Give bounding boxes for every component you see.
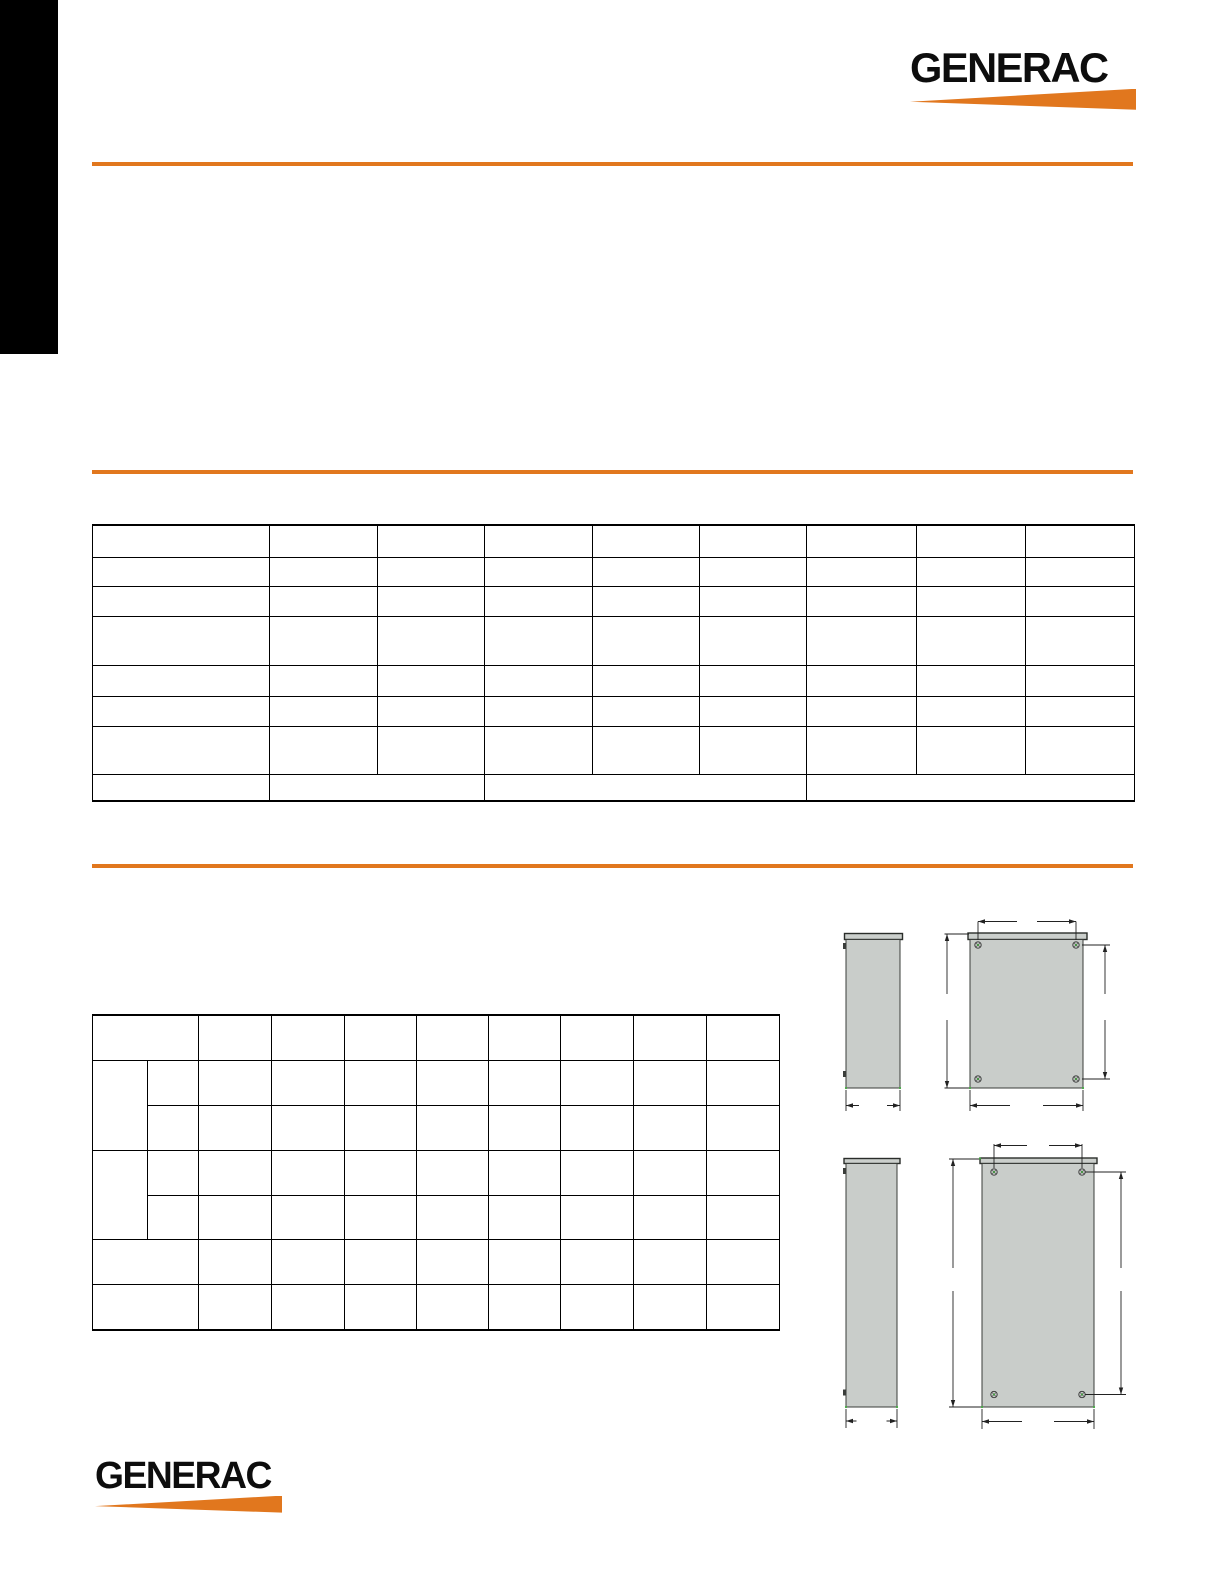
table-cell (917, 696, 1026, 726)
table-cell (634, 1015, 707, 1060)
table-cell (1026, 557, 1135, 586)
screw-icon (1079, 1391, 1085, 1397)
screw-icon (975, 1076, 981, 1082)
table-cell (270, 726, 378, 774)
table-cell (485, 525, 593, 557)
table-cell (593, 616, 700, 665)
table-cell (489, 1015, 561, 1060)
left-accent-bar (0, 0, 58, 354)
table-cell (199, 1015, 272, 1060)
table-cell (272, 1284, 345, 1330)
table-cell (485, 696, 593, 726)
table-cell (93, 774, 270, 801)
screw-icon (975, 942, 981, 948)
table-cell (707, 1105, 780, 1150)
table-cell (707, 1195, 780, 1239)
table-cell (272, 1105, 345, 1150)
table-cell (345, 1150, 417, 1195)
table-cell (345, 1195, 417, 1239)
table-cell (417, 1105, 489, 1150)
table-cell (593, 557, 700, 586)
table-cell (634, 1239, 707, 1284)
table-cell (378, 665, 485, 696)
table-cell (561, 1150, 634, 1195)
side-view-box (843, 934, 903, 1089)
table-cell (1026, 525, 1135, 557)
table-cell (807, 665, 917, 696)
side-view-box (843, 1159, 900, 1408)
table-cell (593, 586, 700, 616)
table-cell (93, 696, 270, 726)
table-cell (272, 1060, 345, 1105)
table-cell (345, 1284, 417, 1330)
table-cell (93, 557, 270, 586)
table-cell (378, 525, 485, 557)
table-cell (561, 1284, 634, 1330)
page: GENERAC (0, 0, 1224, 1584)
dimensions-table (92, 1014, 780, 1331)
table-cell (417, 1239, 489, 1284)
table-cell (485, 557, 593, 586)
table-cell (345, 1239, 417, 1284)
table-cell (270, 696, 378, 726)
screw-icon (1073, 942, 1079, 948)
table-cell (345, 1015, 417, 1060)
table-cell (489, 1239, 561, 1284)
logo-wordmark: GENERAC (910, 52, 1136, 85)
generac-logo-header: GENERAC (910, 52, 1138, 110)
enclosure-drawing-top (830, 910, 1140, 1135)
enclosure-drawing-bottom (830, 1140, 1140, 1432)
front-view-box (980, 1158, 1097, 1407)
table-cell (272, 1150, 345, 1195)
table-cell (93, 1015, 199, 1060)
generac-logo-footer: GENERAC (95, 1462, 285, 1513)
table-cell (199, 1060, 272, 1105)
table-cell (1026, 586, 1135, 616)
table-cell (700, 616, 807, 665)
table-cell (700, 665, 807, 696)
table-cell (417, 1195, 489, 1239)
table-cell (417, 1015, 489, 1060)
table-cell (561, 1239, 634, 1284)
table-cell (593, 525, 700, 557)
section-rule-1 (92, 162, 1133, 166)
table-cell (707, 1015, 780, 1060)
table-cell (707, 1060, 780, 1105)
screw-icon (1073, 1076, 1079, 1082)
table-cell (634, 1060, 707, 1105)
table-cell (634, 1105, 707, 1150)
table-cell (199, 1239, 272, 1284)
table-cell (270, 557, 378, 586)
table-cell (485, 665, 593, 696)
table-cell (417, 1150, 489, 1195)
spec-table (92, 524, 1135, 802)
table-cell (148, 1060, 199, 1105)
table-cell (378, 557, 485, 586)
table-cell (270, 616, 378, 665)
table-cell (378, 696, 485, 726)
table-cell (148, 1195, 199, 1239)
table-cell (489, 1060, 561, 1105)
table-cell (489, 1150, 561, 1195)
table-cell (489, 1195, 561, 1239)
table-cell (199, 1150, 272, 1195)
logo-swoosh-icon (910, 89, 1136, 110)
table-cell (700, 726, 807, 774)
table-cell (1026, 696, 1135, 726)
table-cell (593, 726, 700, 774)
table-cell (807, 774, 1135, 801)
table-cell (561, 1015, 634, 1060)
table-cell (807, 525, 917, 557)
screw-icon (991, 1169, 997, 1175)
logo-wordmark: GENERAC (95, 1462, 281, 1492)
table-cell (807, 586, 917, 616)
table-cell (593, 665, 700, 696)
table-cell (489, 1105, 561, 1150)
table-cell (917, 586, 1026, 616)
front-view-box (968, 933, 1087, 1088)
table-cell (489, 1284, 561, 1330)
table-cell (593, 696, 700, 726)
dimensions-table-wrap (92, 1014, 780, 1331)
table-cell (378, 726, 485, 774)
table-cell (93, 616, 270, 665)
table-cell (93, 665, 270, 696)
table-cell (707, 1239, 780, 1284)
table-cell (917, 525, 1026, 557)
table-cell (270, 665, 378, 696)
section-rule-3 (92, 864, 1133, 868)
table-cell (270, 774, 485, 801)
table-cell (93, 1060, 148, 1150)
table-cell (272, 1239, 345, 1284)
table-cell (272, 1015, 345, 1060)
table-cell (561, 1060, 634, 1105)
table-cell (345, 1105, 417, 1150)
table-cell (93, 586, 270, 616)
table-cell (807, 726, 917, 774)
table-cell (93, 1150, 148, 1239)
table-cell (807, 557, 917, 586)
table-cell (378, 586, 485, 616)
table-cell (199, 1195, 272, 1239)
table-cell (707, 1284, 780, 1330)
table-cell (345, 1060, 417, 1105)
section-rule-2 (92, 470, 1133, 474)
logo-swoosh-icon (95, 1496, 282, 1513)
table-cell (93, 525, 270, 557)
table-cell (1026, 616, 1135, 665)
table-cell (807, 616, 917, 665)
table-cell (1026, 726, 1135, 774)
table-cell (485, 586, 593, 616)
table-cell (700, 586, 807, 616)
table-cell (93, 1284, 199, 1330)
table-cell (270, 586, 378, 616)
table-cell (917, 616, 1026, 665)
table-cell (634, 1195, 707, 1239)
table-cell (485, 726, 593, 774)
table-cell (917, 557, 1026, 586)
table-cell (1026, 665, 1135, 696)
table-cell (700, 525, 807, 557)
table-cell (417, 1284, 489, 1330)
table-cell (199, 1284, 272, 1330)
table-cell (93, 1239, 199, 1284)
table-cell (272, 1195, 345, 1239)
table-cell (93, 726, 270, 774)
table-cell (700, 557, 807, 586)
screw-icon (1079, 1169, 1085, 1175)
table-cell (561, 1195, 634, 1239)
table-cell (378, 616, 485, 665)
table-cell (917, 665, 1026, 696)
table-cell (148, 1105, 199, 1150)
table-cell (199, 1105, 272, 1150)
table-cell (917, 726, 1026, 774)
table-cell (270, 525, 378, 557)
table-cell (485, 616, 593, 665)
table-cell (148, 1150, 199, 1195)
screw-icon (991, 1391, 997, 1397)
table-cell (417, 1060, 489, 1105)
table-cell (707, 1150, 780, 1195)
table-cell (807, 696, 917, 726)
table-cell (700, 696, 807, 726)
spec-table-wrap (92, 524, 1135, 802)
table-cell (634, 1284, 707, 1330)
table-cell (634, 1150, 707, 1195)
table-cell (485, 774, 807, 801)
table-cell (561, 1105, 634, 1150)
